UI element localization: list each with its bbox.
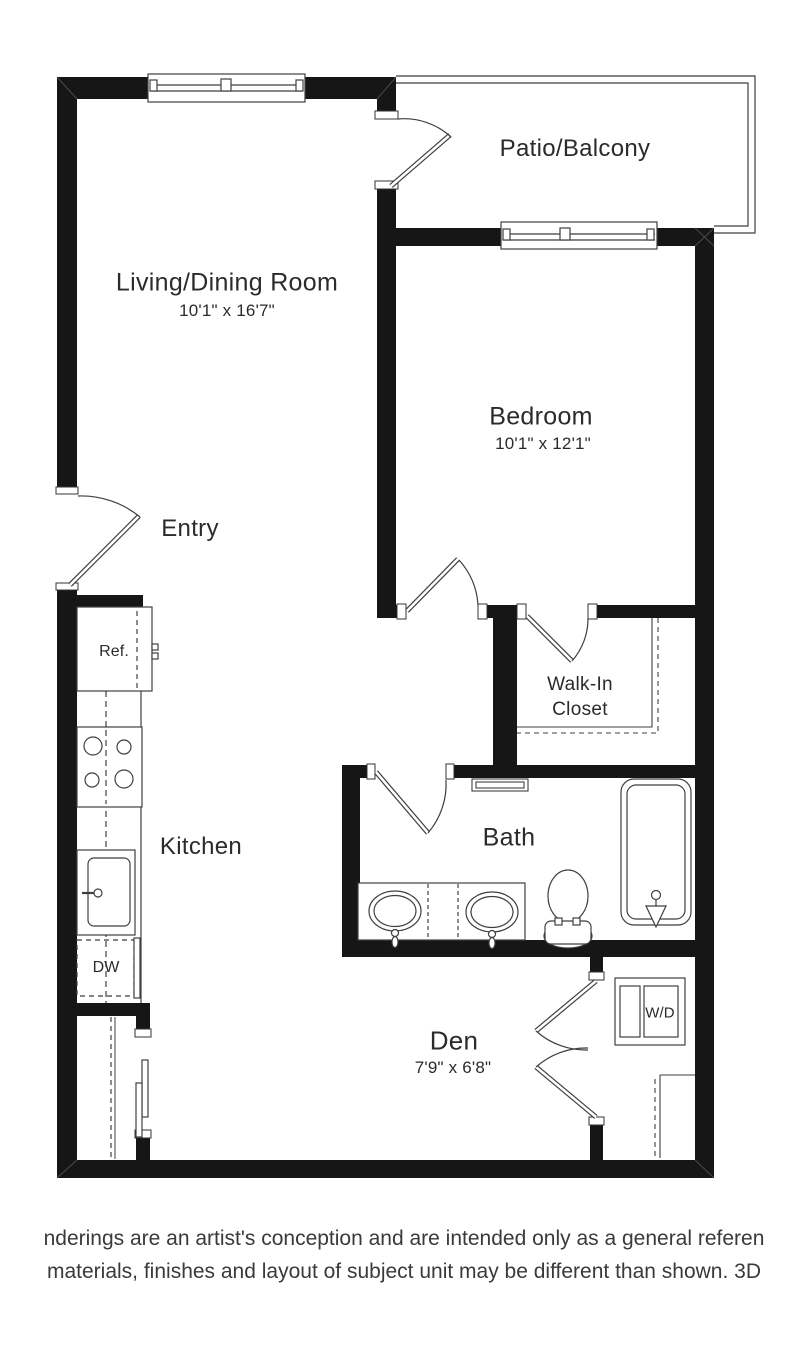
bedroom-label: Bedroom — [489, 403, 593, 432]
entry-label: Entry — [161, 515, 219, 543]
patio-balcony-label: Patio/Balcony — [500, 135, 651, 163]
den-double-doors — [536, 981, 596, 1117]
vanity-sinks — [358, 883, 525, 949]
bath-label: Bath — [483, 824, 536, 853]
walk-in-closet-label-line2: Closet — [547, 697, 613, 722]
floor-plan-drawing — [0, 0, 808, 1212]
living-dining-room-dims: 10'1" x 16'7" — [179, 301, 275, 321]
bedroom-window — [501, 222, 657, 249]
kitchen-sink — [77, 850, 135, 935]
bedroom-dims: 10'1" x 12'1" — [495, 434, 591, 454]
stove — [77, 727, 142, 807]
disclaimer-line2: materials, finishes and layout of subjec… — [0, 1255, 808, 1288]
utility-corner — [655, 1075, 695, 1158]
entry-door — [70, 496, 140, 585]
kitchen-label: Kitchen — [160, 833, 242, 861]
disclaimer-line1: nderings are an artist's conception and … — [0, 1222, 808, 1255]
bedroom-door — [407, 559, 478, 611]
toilet — [544, 870, 592, 948]
washer-dryer-label: W/D — [645, 1005, 674, 1022]
floor-plan: Living/Dining Room 10'1" x 16'7" Patio/B… — [0, 0, 808, 1212]
floor-plan-page: Living/Dining Room 10'1" x 16'7" Patio/B… — [0, 0, 808, 1348]
bath-niche — [472, 779, 528, 791]
living-room-window — [148, 74, 305, 102]
walk-in-closet-label: Walk-In Closet — [547, 672, 613, 722]
refrigerator-label: Ref. — [99, 643, 129, 661]
den-dims: 7'9" x 6'8" — [415, 1058, 492, 1078]
bathtub — [621, 779, 691, 927]
den-label: Den — [430, 1026, 479, 1057]
bath-door — [376, 772, 446, 833]
dishwasher-label: DW — [93, 959, 120, 977]
disclaimer-text: nderings are an artist's conception and … — [0, 1222, 808, 1288]
walk-in-closet-door — [527, 616, 588, 661]
living-dining-room-label: Living/Dining Room — [116, 269, 338, 298]
patio-door — [391, 119, 451, 186]
walk-in-closet-label-line1: Walk-In — [547, 672, 613, 697]
